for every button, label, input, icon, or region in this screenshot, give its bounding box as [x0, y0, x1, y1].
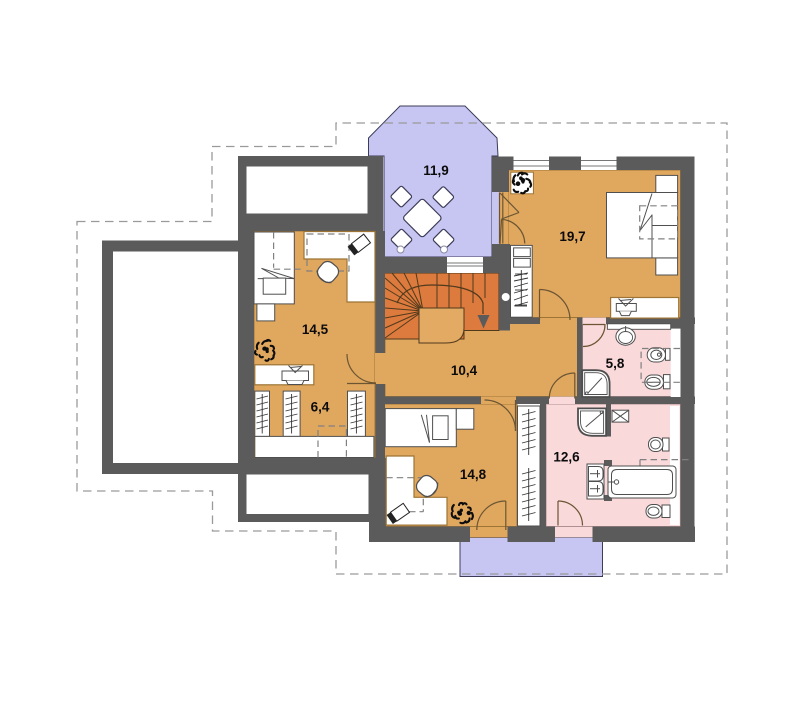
svg-text:10,4: 10,4 — [451, 363, 478, 378]
svg-text:11,9: 11,9 — [423, 163, 449, 178]
svg-text:5,8: 5,8 — [606, 356, 625, 371]
svg-text:14,5: 14,5 — [302, 322, 329, 337]
svg-text:19,7: 19,7 — [559, 229, 585, 244]
svg-text:6,4: 6,4 — [311, 400, 330, 415]
svg-text:12,6: 12,6 — [553, 450, 580, 465]
svg-text:14,8: 14,8 — [460, 467, 487, 482]
